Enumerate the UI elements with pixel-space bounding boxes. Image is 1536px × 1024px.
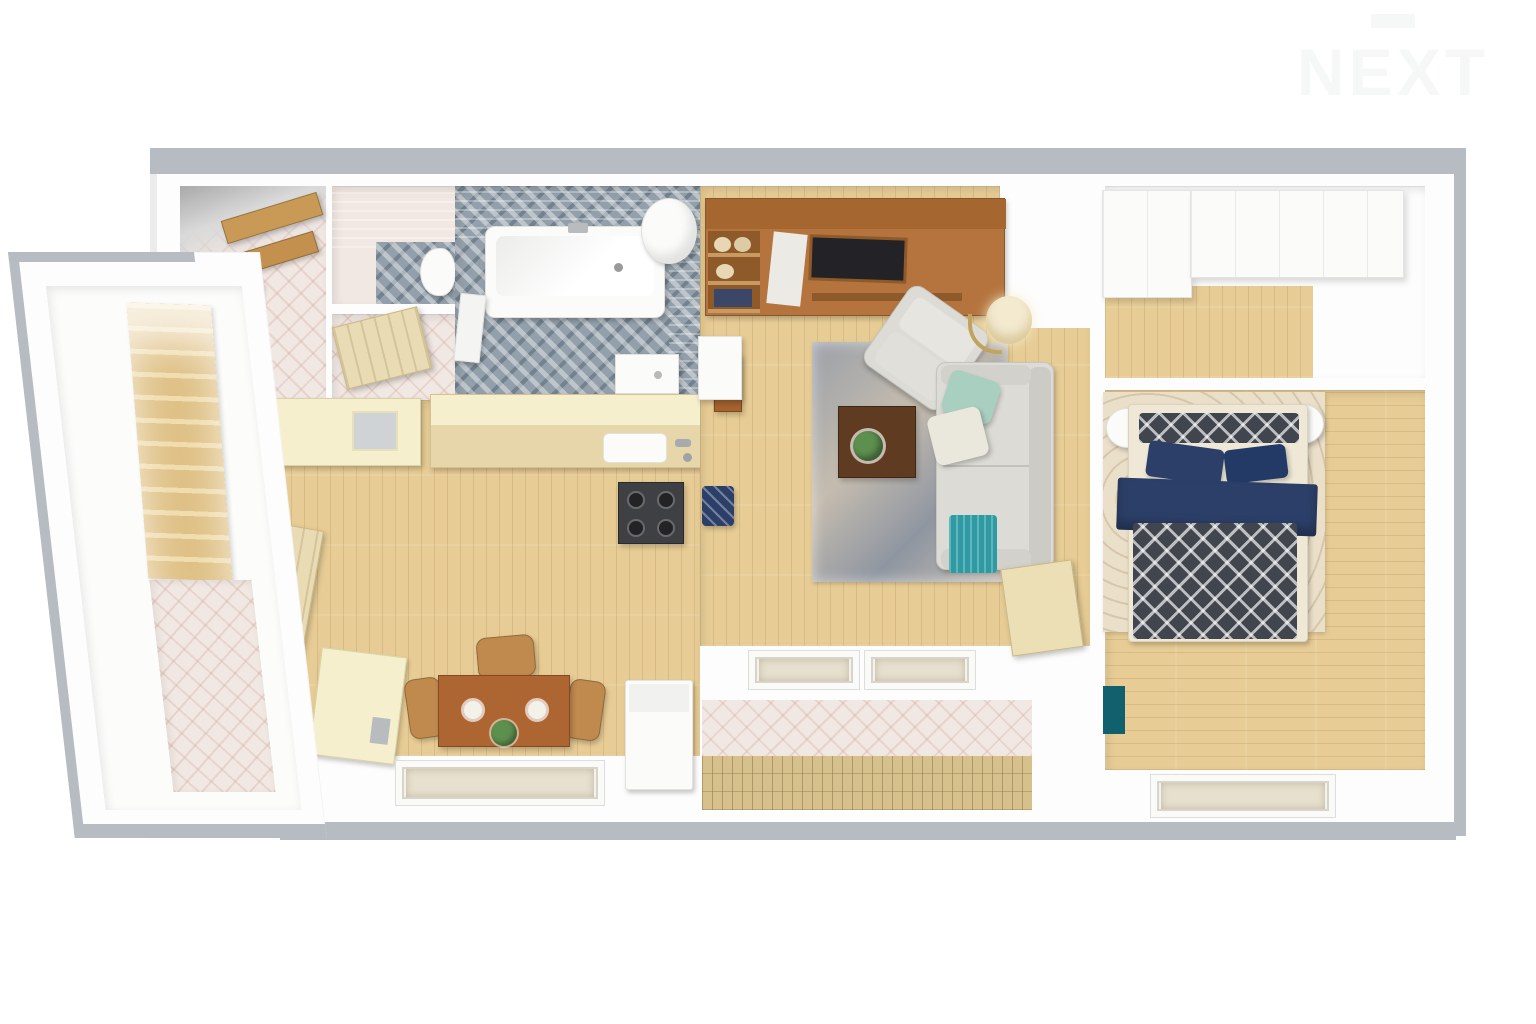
water-heater bbox=[641, 198, 697, 264]
bathtub-faucet bbox=[568, 223, 588, 233]
table-plant bbox=[491, 720, 517, 746]
sofa bbox=[936, 362, 1054, 570]
room-balcony bbox=[702, 700, 1032, 810]
stove-burner bbox=[657, 491, 675, 509]
bedroom-roof-window-pane bbox=[1161, 783, 1325, 809]
room-living bbox=[700, 186, 1090, 646]
storage-basket bbox=[734, 237, 751, 252]
bed-pillow-navy-right bbox=[1223, 443, 1289, 484]
room-storage bbox=[332, 314, 460, 400]
apartment-structure bbox=[150, 148, 1466, 840]
tv-unit-shelves bbox=[708, 231, 760, 313]
watermark-bar-icon bbox=[1371, 14, 1415, 28]
bathtub bbox=[485, 226, 665, 318]
tv-unit-top-band bbox=[706, 199, 1006, 229]
bed bbox=[1128, 404, 1308, 642]
wardrobe-cabinets-top bbox=[1190, 190, 1404, 278]
kitchen-roof-window-pane bbox=[406, 769, 594, 797]
teal-wall-object bbox=[1103, 686, 1125, 734]
sofa-seat-seam bbox=[943, 465, 1029, 467]
bathroom-door bbox=[454, 293, 487, 363]
kitchen-cabinet-glass-panel bbox=[352, 411, 398, 451]
toilet bbox=[420, 248, 456, 296]
bathtub-basin bbox=[496, 236, 654, 296]
room-bathroom bbox=[455, 186, 701, 398]
bed-pillow-patterned bbox=[1139, 413, 1299, 443]
washing-machine bbox=[625, 680, 693, 790]
kitchen-faucet bbox=[675, 439, 691, 447]
plate bbox=[525, 698, 549, 722]
wardrobe-floor bbox=[1105, 286, 1313, 378]
stove-burner bbox=[627, 491, 645, 509]
floorplan-canvas: NEXT bbox=[0, 0, 1536, 1024]
tv-screen bbox=[811, 237, 904, 280]
coffee-table-plant bbox=[853, 431, 883, 461]
room-kitchen bbox=[265, 400, 700, 756]
room-wc bbox=[332, 186, 460, 304]
storage-door bbox=[332, 306, 433, 389]
stove-burner bbox=[627, 519, 645, 537]
living-roof-window-left bbox=[748, 650, 860, 690]
dining-chair-top bbox=[475, 634, 536, 681]
annex-exterior-wall-bottom bbox=[73, 824, 327, 838]
kitchen-faucet-handle bbox=[683, 453, 692, 462]
tv-unit-glass-panel bbox=[766, 231, 807, 306]
coffee-table bbox=[838, 406, 916, 478]
sofa-backrest bbox=[1029, 367, 1051, 567]
living-roof-window-pane bbox=[875, 659, 965, 681]
balcony-door bbox=[1000, 559, 1084, 656]
exterior-wall-bottom bbox=[280, 822, 1456, 840]
wc-wall-tiles bbox=[332, 186, 460, 248]
kitchen-counter bbox=[430, 394, 702, 468]
kitchen-cabinet-left bbox=[263, 398, 421, 466]
exterior-wall-top bbox=[150, 148, 1466, 174]
kitchen-counter-front bbox=[431, 395, 703, 425]
pouf bbox=[702, 486, 734, 526]
storage-box-navy bbox=[714, 289, 752, 307]
pillow-cream bbox=[926, 405, 990, 467]
plate bbox=[461, 698, 485, 722]
stove bbox=[618, 482, 684, 544]
watermark-text: NEXT bbox=[1268, 32, 1518, 112]
dining-table bbox=[438, 675, 570, 747]
annex-exterior-wall-top bbox=[8, 252, 195, 262]
bathtub-drain bbox=[614, 263, 623, 272]
room-wardrobe bbox=[1105, 186, 1425, 378]
storage-basket bbox=[716, 264, 734, 279]
stove-burner bbox=[657, 519, 675, 537]
bed-blanket-patterned bbox=[1133, 523, 1297, 639]
wall-desk bbox=[698, 336, 742, 400]
throw-teal bbox=[949, 515, 997, 573]
kitchen-roof-window bbox=[395, 760, 605, 806]
balcony-tiled-wall bbox=[702, 700, 1032, 756]
fridge-vent bbox=[370, 717, 391, 745]
bedroom-roof-window bbox=[1150, 774, 1336, 818]
living-roof-window-pane bbox=[759, 659, 849, 681]
exterior-wall-right bbox=[1454, 156, 1466, 836]
floor-lamp-shade bbox=[986, 296, 1032, 344]
fridge-unit bbox=[309, 647, 408, 765]
kitchen-sink bbox=[603, 433, 667, 463]
balcony-decking bbox=[702, 756, 1032, 810]
living-roof-window-right bbox=[864, 650, 976, 690]
shower-basin bbox=[615, 354, 679, 394]
tv-wall-unit bbox=[705, 198, 1005, 316]
washing-machine-top-face bbox=[629, 684, 689, 712]
storage-basket bbox=[714, 237, 731, 252]
shower-drain bbox=[654, 371, 662, 379]
wardrobe-cabinets-left bbox=[1102, 190, 1192, 298]
brand-watermark: NEXT bbox=[1268, 14, 1518, 114]
room-bedroom bbox=[1105, 390, 1425, 770]
